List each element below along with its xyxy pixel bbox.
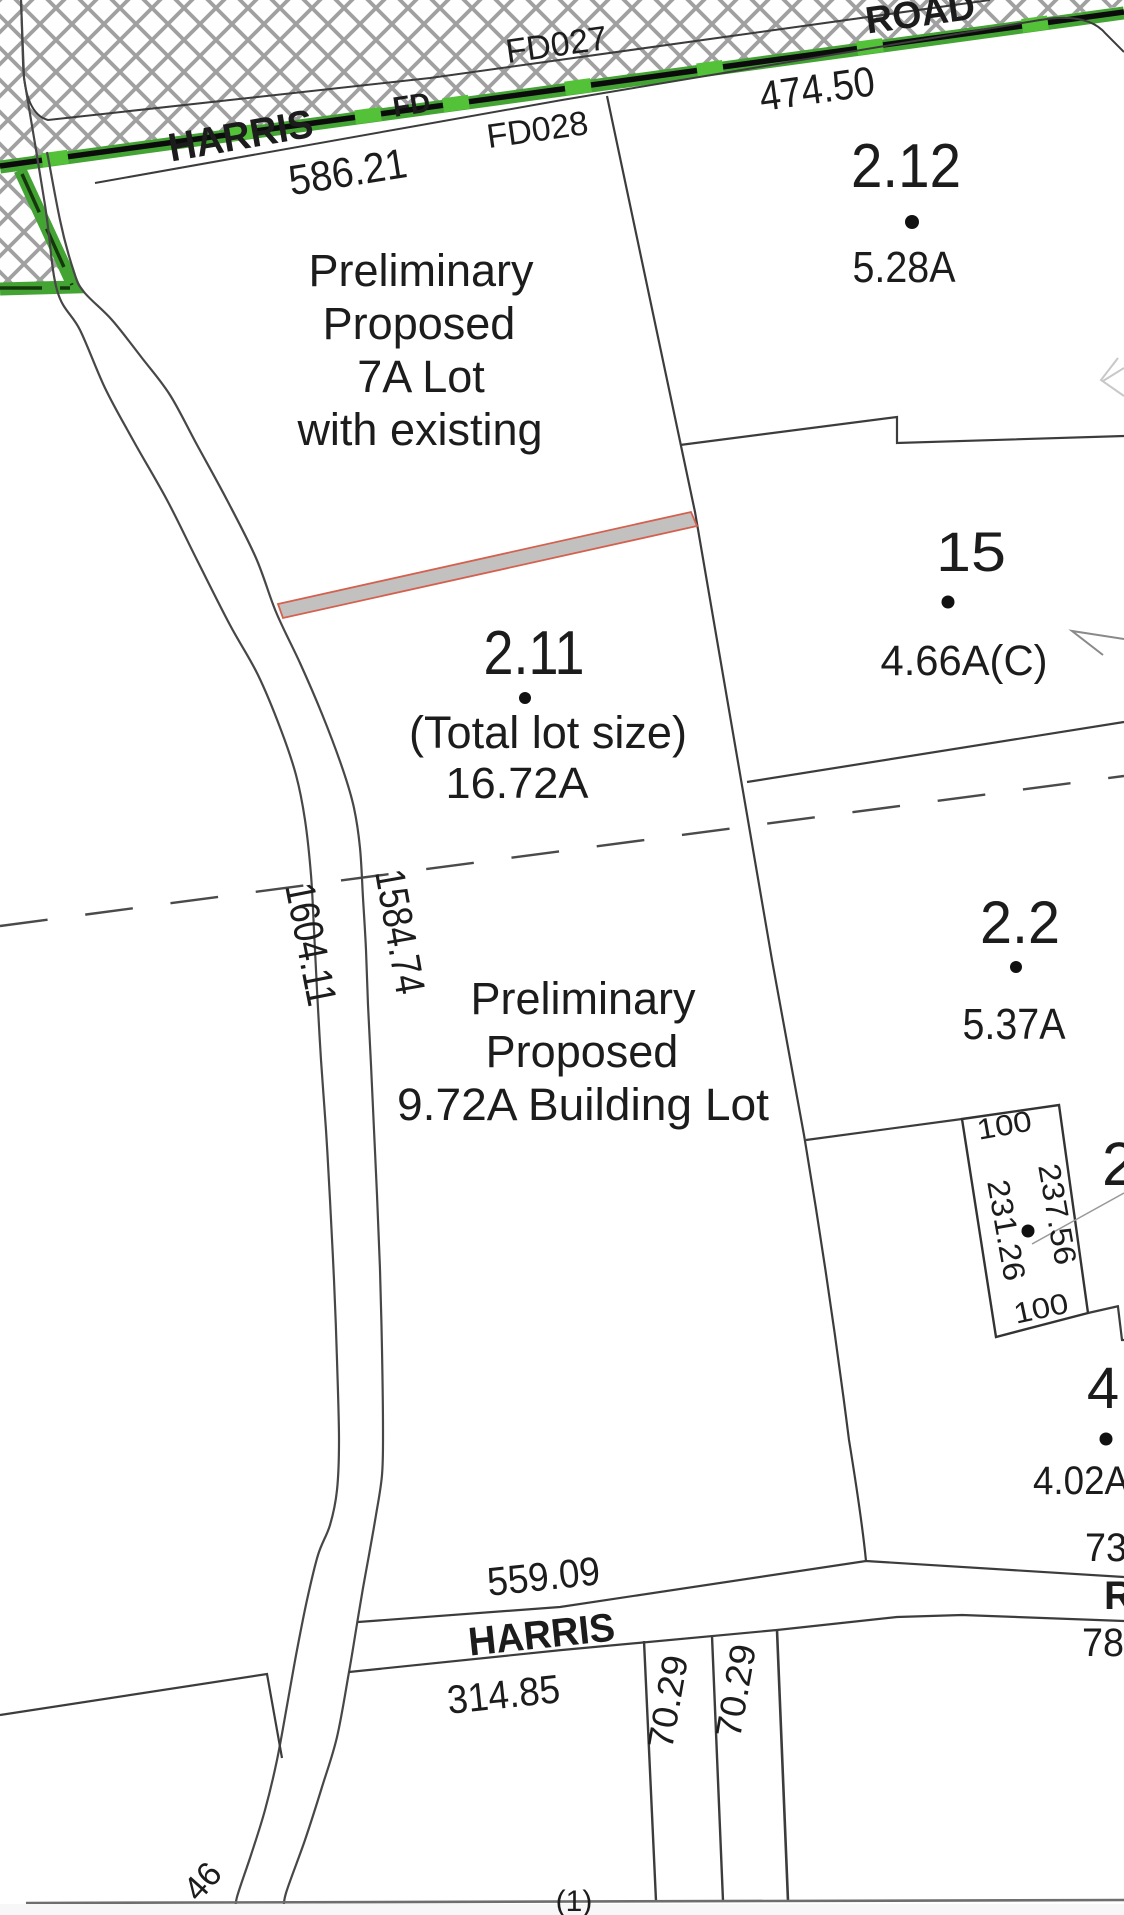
- svg-text:(Total lot size): (Total lot size): [409, 707, 687, 758]
- svg-text:4.66A(C): 4.66A(C): [881, 637, 1048, 685]
- svg-text:(1): (1): [556, 1885, 593, 1915]
- svg-text:2.12: 2.12: [851, 132, 961, 201]
- svg-text:2: 2: [1102, 1130, 1124, 1198]
- svg-text:2.2: 2.2: [980, 889, 1060, 956]
- svg-text:FD: FD: [391, 86, 433, 122]
- svg-text:9.72A Building Lot: 9.72A Building Lot: [397, 1079, 770, 1130]
- svg-text:with existing: with existing: [296, 404, 542, 455]
- svg-text:Preliminary: Preliminary: [470, 973, 696, 1024]
- svg-text:7A Lot: 7A Lot: [357, 351, 485, 402]
- svg-text:Preliminary: Preliminary: [308, 245, 534, 296]
- svg-text:73: 73: [1085, 1526, 1124, 1570]
- svg-text:16.72A: 16.72A: [446, 759, 590, 808]
- svg-text:78: 78: [1082, 1621, 1124, 1665]
- svg-text:15: 15: [936, 520, 1006, 583]
- svg-text:2.11: 2.11: [484, 619, 585, 688]
- svg-text:4.02A: 4.02A: [1033, 1459, 1124, 1503]
- svg-text:5.37A: 5.37A: [963, 1000, 1067, 1049]
- svg-text:RO: RO: [1104, 1574, 1124, 1618]
- svg-text:4: 4: [1087, 1356, 1119, 1421]
- svg-text:5.28A: 5.28A: [853, 243, 957, 292]
- svg-text:Proposed: Proposed: [486, 1026, 679, 1077]
- svg-text:Proposed: Proposed: [323, 298, 516, 349]
